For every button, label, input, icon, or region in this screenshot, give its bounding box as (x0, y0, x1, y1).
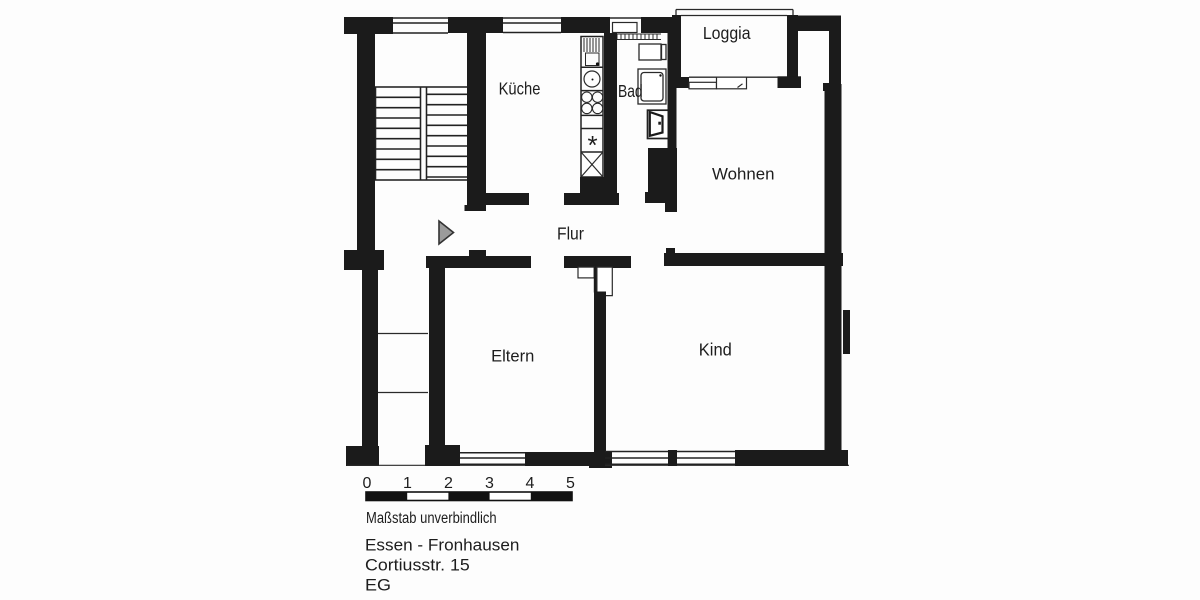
svg-text:Bad: Bad (618, 81, 643, 101)
svg-text:EG: EG (365, 576, 391, 595)
svg-text:3: 3 (485, 475, 494, 492)
svg-text:Flur: Flur (557, 223, 584, 243)
svg-text:Eltern: Eltern (491, 346, 534, 365)
svg-text:Wohnen: Wohnen (712, 164, 775, 183)
svg-text:Cortiusstr. 15: Cortiusstr. 15 (365, 556, 470, 575)
svg-text:4: 4 (526, 475, 535, 492)
svg-text:Loggia: Loggia (703, 23, 751, 43)
svg-text:*: * (587, 130, 597, 160)
svg-text:Essen - Fronhausen: Essen - Fronhausen (365, 536, 519, 555)
svg-text:0: 0 (363, 475, 372, 492)
svg-text:Kind: Kind (699, 339, 732, 359)
svg-text:2: 2 (444, 475, 453, 492)
svg-text:Maßstab unverbindlich: Maßstab unverbindlich (366, 510, 497, 527)
svg-text:5: 5 (566, 475, 575, 492)
svg-text:Küche: Küche (499, 79, 541, 99)
svg-text:1: 1 (403, 475, 412, 492)
